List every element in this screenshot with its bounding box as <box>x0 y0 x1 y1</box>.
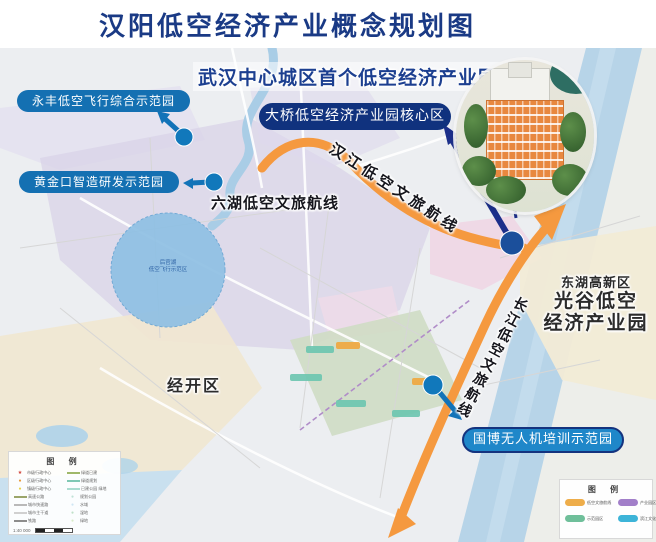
legend-row: ●水域 <box>66 501 116 509</box>
legend-right-items: 低空文旅航线产业园区示范园区滨江文化旅游区 <box>565 499 647 522</box>
photo-tree <box>464 104 488 148</box>
legend-row: ●镇级行政中心 <box>13 485 63 493</box>
legend-row: ●规划公园 <box>66 493 116 501</box>
liuhu-route-label: 六湖低空文旅航线 <box>211 192 339 213</box>
legend-right-title: 图 例 <box>565 484 647 495</box>
legend-row: ●区级行政中心 <box>13 477 63 485</box>
core-area-pill: 大桥低空经济产业园核心区 <box>259 103 451 130</box>
huangjinkou-site-dot <box>205 173 223 191</box>
huangjinkou-pill: 黄金口智造研发示范园 <box>19 171 179 193</box>
daqiao-site-dot <box>500 231 524 255</box>
building-photo-inset <box>456 60 594 212</box>
legend-row: ●湿地 <box>66 509 116 517</box>
legend-swatch-item: 产业园区 <box>618 499 656 506</box>
legend-row: ●绿地 <box>66 517 116 525</box>
lake-zone-label: 后官湖 低空飞行示范区 <box>111 260 225 274</box>
legend-row: 高速公路 <box>13 493 63 501</box>
legend-left-title: 图 例 <box>13 456 116 467</box>
banner-first-park: 武汉中心城区首个低空经济产业园 <box>193 62 503 91</box>
photo-tree <box>560 112 586 152</box>
guobo-site-dot <box>423 375 443 395</box>
page-title: 汉阳低空经济产业概念规划图 <box>70 6 505 43</box>
legend-row: 铁路 <box>13 517 63 525</box>
photo-building <box>486 100 564 180</box>
legend-swatch-item: 滨江文化旅游区 <box>618 515 656 522</box>
legend-row: 绿道已建 <box>66 469 116 477</box>
legend-left: 图 例 ★市级行政中心●区级行政中心●镇级行政中心高速公路城市快速路城市主干道铁… <box>8 451 121 535</box>
legend-row: ★市级行政中心 <box>13 469 63 477</box>
legend-left-col2: 绿道已建绿道规划已建公园 绿地●规划公园●水域●湿地●绿地 <box>66 469 116 525</box>
yongfeng-site-dot <box>175 128 193 146</box>
legend-row: 已建公园 绿地 <box>66 485 116 493</box>
legend-right: 图 例 低空文旅航线产业园区示范园区滨江文化旅游区 <box>559 479 653 539</box>
legend-swatch-item: 低空文旅航线 <box>565 499 614 506</box>
photo-pond <box>550 60 594 94</box>
guanggu-region-label: 东湖高新区 光谷低空 经济产业园 <box>538 272 654 335</box>
photo-tree <box>552 164 588 196</box>
planning-map: 后官湖 低空飞行示范区 武汉中心城区首个低空经济产业园 大桥低空经济产业园核心区… <box>0 48 656 542</box>
jingkai-region-label: 经开区 <box>167 372 221 396</box>
legend-row: 城市主干道 <box>13 509 63 517</box>
legend-left-col1: ★市级行政中心●区级行政中心●镇级行政中心高速公路城市快速路城市主干道铁路 <box>13 469 63 525</box>
legend-scalebar: 1:40 000 <box>13 528 116 533</box>
legend-swatch-item: 示范园区 <box>565 515 614 522</box>
legend-row: 城市快速路 <box>13 501 63 509</box>
photo-tree <box>486 176 526 204</box>
legend-row: 绿道规划 <box>66 477 116 485</box>
photo-roof-top <box>508 62 532 78</box>
guobo-pill: 国博无人机培训示范园 <box>462 427 624 453</box>
yongfeng-pill: 永丰低空飞行综合示范园 <box>17 90 190 112</box>
